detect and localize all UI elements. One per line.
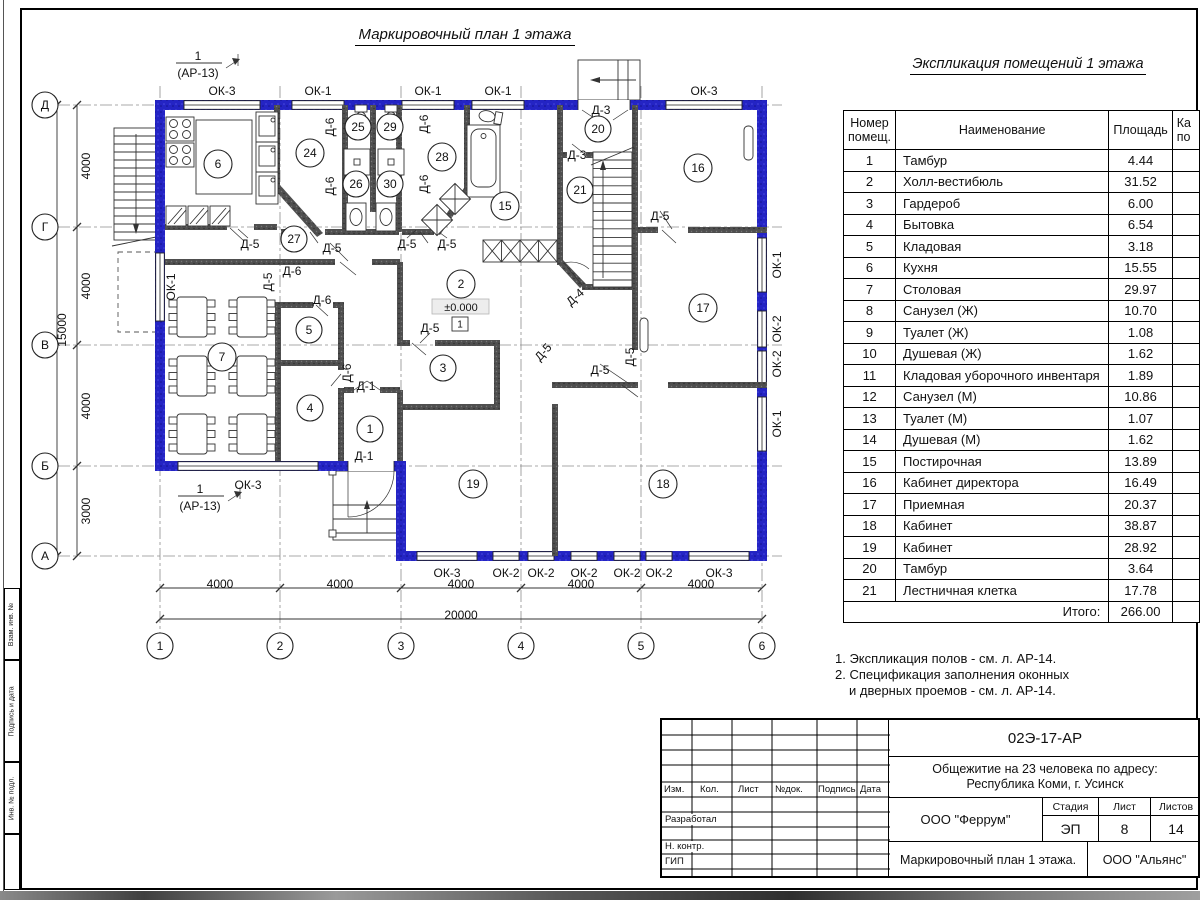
- table-cell: [1172, 257, 1199, 279]
- table-cell: Туалет (М): [896, 408, 1109, 430]
- rect-el: [259, 146, 275, 166]
- use-el: [346, 203, 366, 231]
- table-cell: 3: [844, 193, 896, 215]
- table-cell: 11: [844, 365, 896, 387]
- table-cell: Санузел (М): [896, 386, 1109, 408]
- rect-el: [338, 302, 344, 370]
- plan-label: 20000: [444, 608, 478, 622]
- plan-label: 1: [367, 422, 374, 436]
- plan-label: 27: [287, 232, 301, 246]
- table-row: 7Столовая29.97: [844, 279, 1200, 301]
- bathtub: [467, 125, 500, 197]
- plan-label: Д-1: [357, 379, 376, 393]
- table-row: 12Санузел (М)10.86: [844, 386, 1200, 408]
- table-cell: Холл-вестибюль: [896, 171, 1109, 193]
- rect-el: [275, 360, 344, 366]
- col-header-cut: Ка по: [1172, 111, 1199, 150]
- notes: 1. Экспликация полов - см. л. АР-14. 2. …: [835, 651, 1069, 699]
- plan-label: 4000: [79, 152, 93, 179]
- table-cell: 1.62: [1109, 429, 1172, 451]
- table-row: 13Туалет (М)1.07: [844, 408, 1200, 430]
- plan-label: ОК-2: [528, 566, 555, 580]
- plan-label: 4: [307, 401, 314, 415]
- plan-label: Д-5: [421, 321, 440, 335]
- plan-label: Д-5: [241, 237, 260, 251]
- sheets-total-cell: 14: [1150, 815, 1200, 842]
- entrance-stoop-top: [578, 60, 640, 100]
- table-cell: 8: [844, 300, 896, 322]
- table-cell: 17: [844, 494, 896, 516]
- plan-label: 1: [457, 320, 463, 331]
- plan-label: 21: [573, 183, 587, 197]
- table-cell: [1172, 515, 1199, 537]
- plan-label: 6: [215, 157, 222, 171]
- table-cell: 4: [844, 214, 896, 236]
- table-cell: [1172, 193, 1199, 215]
- plan-label: ОК-1: [770, 251, 784, 278]
- plan-label: Д-5: [398, 237, 417, 251]
- plan-label: 3000: [79, 497, 93, 524]
- rect-el: [632, 288, 638, 350]
- plan-label: 4000: [207, 577, 234, 591]
- table-cell: 13.89: [1109, 451, 1172, 473]
- table-row: 16Кабинет директора16.49: [844, 472, 1200, 494]
- rect-el: [254, 224, 277, 230]
- table-cell: 1.07: [1109, 408, 1172, 430]
- table-cell: Кабинет: [896, 515, 1109, 537]
- plan-label: ±0.000: [444, 302, 478, 314]
- role-ncontrol: Н. контр.: [665, 841, 707, 852]
- plan-label: 30: [383, 177, 397, 191]
- rect-el: [640, 318, 648, 352]
- table-row: 6Кухня15.55: [844, 257, 1200, 279]
- table-cell: Постирочная: [896, 451, 1109, 473]
- plan-title: Маркировочный план 1 этажа: [330, 26, 600, 43]
- drawing-sheet: { "sheet": { "plan_title": "Маркировочны…: [0, 0, 1200, 900]
- canopy-dashed-outline: [118, 252, 156, 332]
- external-stair: [112, 128, 161, 246]
- path-el: [692, 720, 857, 876]
- table-cell: Душевая (М): [896, 429, 1109, 451]
- table-cell: Тамбур: [896, 558, 1109, 580]
- rect-el: [688, 227, 767, 233]
- plan-label: ОК-3: [691, 84, 718, 98]
- col-header-number: Номер помещ.: [844, 111, 896, 150]
- plan-label: 28: [435, 150, 449, 164]
- plan-label: ОК-1: [415, 84, 442, 98]
- table-cell: 7: [844, 279, 896, 301]
- table-cell: 16.49: [1109, 472, 1172, 494]
- plan-label: 25: [351, 120, 365, 134]
- table-cell: [1172, 558, 1199, 580]
- plan-label: Д-6: [323, 117, 337, 136]
- table-row: 5Кладовая3.18: [844, 236, 1200, 258]
- plan-label: 26: [349, 177, 363, 191]
- expl-table-body: 1Тамбур4.442Холл-вестибюль31.523Гардероб…: [844, 150, 1200, 602]
- table-cell: 13: [844, 408, 896, 430]
- role-gip: ГИП: [665, 856, 687, 867]
- plan-label: (АР-13): [177, 66, 218, 80]
- rect-el: [325, 229, 343, 235]
- table-cell: [1172, 429, 1199, 451]
- table-row: 4Бытовка6.54: [844, 214, 1200, 236]
- table-row: 20Тамбур3.64: [844, 558, 1200, 580]
- plan-label: 1: [157, 639, 164, 653]
- table-cell: Гардероб: [896, 193, 1109, 215]
- rect-el: [338, 388, 344, 461]
- rect-el: [557, 105, 563, 265]
- stage-value-cell: ЭП: [1042, 815, 1099, 842]
- plan-label: Д-5: [438, 237, 457, 251]
- rect-el: [471, 129, 496, 187]
- plan-label: Д-3: [592, 103, 611, 117]
- rev-header-list: Лист: [738, 784, 759, 795]
- rev-header-izm: Изм.: [664, 784, 684, 795]
- total-label: Итого:: [844, 601, 1109, 622]
- table-cell: [1172, 150, 1199, 172]
- plan-label: 4000: [79, 392, 93, 419]
- rect-el: [593, 152, 632, 287]
- sheet-number-cell: 8: [1098, 815, 1151, 842]
- project-line1: Общежитие на 23 человека по адресу:: [932, 762, 1157, 777]
- table-cell: 17.78: [1109, 580, 1172, 602]
- plan-label: 18: [656, 477, 670, 491]
- axis-grid: [58, 86, 782, 633]
- plan-label: 17: [696, 301, 710, 315]
- plan-label: 3: [440, 361, 447, 375]
- rect-el: [396, 461, 406, 556]
- table-cell: 1.08: [1109, 322, 1172, 344]
- table-cell: [1172, 386, 1199, 408]
- use-el: [169, 414, 215, 454]
- table-cell: [1172, 214, 1199, 236]
- table-cell: Тамбур: [896, 150, 1109, 172]
- plan-label: 4000: [448, 577, 475, 591]
- table-row: 9Туалет (Ж)1.08: [844, 322, 1200, 344]
- table-row: 10Душевая (Ж)1.62: [844, 343, 1200, 365]
- table-cell: Санузел (Ж): [896, 300, 1109, 322]
- rect-el: [435, 340, 500, 346]
- total-row: Итого: 266.00: [844, 601, 1200, 622]
- plan-label: 2: [277, 639, 284, 653]
- rect-el: [344, 387, 354, 393]
- plan-label: 4000: [79, 272, 93, 299]
- plan-label: А: [41, 549, 49, 563]
- plan-label: ОК-2: [493, 566, 520, 580]
- rect-el: [632, 227, 658, 233]
- rect-el: [329, 530, 336, 537]
- table-cell: 16: [844, 472, 896, 494]
- sheet-title-cell: Маркировочный план 1 этажа.: [888, 841, 1088, 878]
- rev-header-sign: Подпись: [818, 784, 856, 795]
- plan-label: Д-5: [323, 241, 342, 255]
- scan-artifact-strip: [0, 891, 1200, 900]
- plan-label: 4000: [327, 577, 354, 591]
- plan-label: Д-6: [283, 264, 302, 278]
- table-cell: Кабинет директора: [896, 472, 1109, 494]
- rect-el: [165, 259, 335, 265]
- plan-label: Д-5: [261, 272, 275, 291]
- use-el: [169, 297, 215, 337]
- use-el: [229, 297, 275, 337]
- role-developer: Разработал: [665, 814, 720, 825]
- table-cell: 1.62: [1109, 343, 1172, 365]
- table-row: 11Кладовая уборочного инвентаря1.89: [844, 365, 1200, 387]
- plan-label: ОК-3: [209, 84, 236, 98]
- table-cell: 31.52: [1109, 171, 1172, 193]
- table-cell: Бытовка: [896, 214, 1109, 236]
- table-cell: 1: [844, 150, 896, 172]
- table-cell: 10: [844, 343, 896, 365]
- table-cell: 5: [844, 236, 896, 258]
- table-cell: 1.89: [1109, 365, 1172, 387]
- plan-label: Д-5: [591, 363, 610, 377]
- rect-el: [275, 302, 281, 461]
- plan-label: Д-6: [323, 176, 337, 195]
- plan-label: 1: [195, 49, 202, 63]
- sheet-label-cell: Лист: [1098, 797, 1151, 816]
- plan-label: 15000: [55, 313, 69, 347]
- table-cell: 2: [844, 171, 896, 193]
- plan-label: 24: [303, 146, 317, 160]
- sheets-label-cell: Листов: [1150, 797, 1200, 816]
- plan-label: ОК-1: [164, 273, 178, 300]
- span-el: Экспликация помещений 1 этажа: [910, 56, 1145, 75]
- note-line: 1. Экспликация полов - см. л. АР-14.: [835, 651, 1069, 667]
- table-header-row: Номер помещ. Наименование Площадь Ка по: [844, 111, 1200, 150]
- note-line: и дверных проемов - см. л. АР-14.: [835, 683, 1069, 699]
- plan-label: 3: [398, 639, 405, 653]
- project-name-cell: Общежитие на 23 человека по адресу: Респ…: [888, 756, 1200, 798]
- table-cell: 6.54: [1109, 214, 1172, 236]
- use-el: [478, 109, 503, 125]
- rev-header-date: Дата: [860, 784, 881, 795]
- table-cell: 6.00: [1109, 193, 1172, 215]
- plan-label: 4000: [688, 577, 715, 591]
- plan-label: В: [41, 338, 49, 352]
- plan-label: 1: [197, 482, 204, 496]
- col-header-cut-line1: Ка: [1177, 116, 1195, 130]
- explication-table-head: Номер помещ. Наименование Площадь Ка по: [844, 111, 1200, 150]
- plan-label: Д-3: [568, 148, 587, 162]
- table-cell: Приемная: [896, 494, 1109, 516]
- table-cell: [1172, 300, 1199, 322]
- customer-org-cell: ООО "Альянс": [1087, 841, 1200, 878]
- plan-label: (АР-13): [179, 499, 220, 513]
- dining-tables: [169, 297, 275, 454]
- plan-label: 6: [759, 639, 766, 653]
- table-row: 19Кабинет28.92: [844, 537, 1200, 559]
- total-value: 266.00: [1109, 601, 1172, 622]
- col-header-name: Наименование: [896, 111, 1109, 150]
- note-line: 2. Спецификация заполнения оконных: [835, 667, 1069, 683]
- plan-label: ОК-2: [770, 315, 784, 342]
- col-header-cut-line2: по: [1177, 130, 1195, 144]
- rect-el: [397, 262, 403, 343]
- table-cell: 10.70: [1109, 300, 1172, 322]
- table-cell: [1172, 580, 1199, 602]
- table-cell: 6: [844, 257, 896, 279]
- table-row: 1Тамбур4.44: [844, 150, 1200, 172]
- rev-header-doc: №док.: [775, 784, 803, 795]
- table-cell: [1172, 537, 1199, 559]
- table-cell: Кабинет: [896, 537, 1109, 559]
- table-cell: [1172, 343, 1199, 365]
- table-cell: 9: [844, 322, 896, 344]
- table-row: 8Санузел (Ж)10.70: [844, 300, 1200, 322]
- table-cell: [1172, 365, 1199, 387]
- table-cell: 15.55: [1109, 257, 1172, 279]
- plan-label: ОК-1: [305, 84, 332, 98]
- rect-el: [744, 126, 753, 160]
- plan-label: ОК-2: [614, 566, 641, 580]
- table-row: 15Постирочная13.89: [844, 451, 1200, 473]
- rect-el: [552, 404, 558, 556]
- rev-header-kol: Кол.: [700, 784, 719, 795]
- total-cut-cell: [1172, 601, 1199, 622]
- polygon-el: [232, 58, 240, 65]
- use-el: [376, 203, 396, 231]
- table-cell: Кладовая: [896, 236, 1109, 258]
- col-header-area: Площадь: [1109, 111, 1172, 150]
- table-cell: 15: [844, 451, 896, 473]
- explication-table-foot: Итого: 266.00: [844, 601, 1200, 622]
- table-cell: Туалет (Ж): [896, 322, 1109, 344]
- revision-grid: [662, 720, 890, 876]
- table-cell: [1172, 494, 1199, 516]
- table-cell: Кладовая уборочного инвентаря: [896, 365, 1109, 387]
- explication-title: Экспликация помещений 1 этажа: [888, 56, 1168, 72]
- rect-el: [275, 302, 313, 308]
- table-cell: [1172, 451, 1199, 473]
- rect-el: [494, 340, 500, 410]
- plan-label: 5: [306, 323, 313, 337]
- table-cell: 3.18: [1109, 236, 1172, 258]
- plan-label: 19: [466, 477, 480, 491]
- span-el: Маркировочный план 1 этажа: [355, 26, 576, 46]
- table-row: 21Лестничная клетка17.78: [844, 580, 1200, 602]
- table-cell: 18: [844, 515, 896, 537]
- plan-label: Д-5: [651, 209, 670, 223]
- rect-el: [259, 176, 275, 196]
- rect-el: [402, 229, 434, 235]
- plan-label: ОК-3: [235, 478, 262, 492]
- table-cell: [1172, 279, 1199, 301]
- plan-label: ОК-1: [485, 84, 512, 98]
- table-cell: [1172, 322, 1199, 344]
- plan-label: ОК-1: [770, 410, 784, 437]
- table-cell: 4.44: [1109, 150, 1172, 172]
- plan-label: Д-5: [532, 340, 555, 364]
- document-code-cell: 02Э-17-АР: [888, 719, 1200, 757]
- table-cell: 28.92: [1109, 537, 1172, 559]
- title-block: Изм. Кол. Лист №док. Подпись Дата Разраб…: [660, 718, 1200, 878]
- plan-label: Д: [41, 98, 49, 112]
- plan-label: Д-6: [313, 293, 332, 307]
- table-cell: Душевая (Ж): [896, 343, 1109, 365]
- plan-label: 5: [638, 639, 645, 653]
- internal-stair: [591, 147, 634, 287]
- table-cell: Лестничная клетка: [896, 580, 1109, 602]
- plan-label: 20: [591, 122, 605, 136]
- use-el: [169, 356, 215, 396]
- use-el: [229, 356, 275, 396]
- table-cell: 29.97: [1109, 279, 1172, 301]
- plan-label: ОК-2: [646, 566, 673, 580]
- designer-org-cell: ООО "Феррум": [888, 797, 1043, 842]
- table-cell: Кухня: [896, 257, 1109, 279]
- table-cell: 38.87: [1109, 515, 1172, 537]
- rect-el: [668, 382, 767, 388]
- project-line2: Республика Коми, г. Усинск: [967, 777, 1124, 792]
- plan-label: 29: [383, 120, 397, 134]
- table-cell: 20.37: [1109, 494, 1172, 516]
- plan-label: 2: [458, 277, 465, 291]
- plan-label: 16: [691, 161, 705, 175]
- table-cell: 20: [844, 558, 896, 580]
- stage-label-cell: Стадия: [1042, 797, 1099, 816]
- rect-el: [372, 259, 400, 265]
- table-cell: 10.86: [1109, 386, 1172, 408]
- table-cell: 19: [844, 537, 896, 559]
- table-cell: [1172, 472, 1199, 494]
- rect-el: [557, 152, 567, 158]
- table-cell: Столовая: [896, 279, 1109, 301]
- rect-el: [632, 105, 638, 288]
- plan-label: Д-6: [417, 174, 431, 193]
- table-row: 2Холл-вестибюль31.52: [844, 171, 1200, 193]
- plan-label: Д-6: [417, 114, 431, 133]
- rect-el: [397, 340, 410, 346]
- rect-el: [259, 116, 275, 136]
- table-cell: [1172, 171, 1199, 193]
- plan-label: Д-5: [623, 347, 637, 366]
- plan-label: Д-6: [340, 363, 354, 382]
- table-row: 3Гардероб6.00: [844, 193, 1200, 215]
- rect-el: [397, 404, 500, 410]
- plan-label: Г: [42, 220, 49, 234]
- table-cell: 3.64: [1109, 558, 1172, 580]
- table-cell: [1172, 408, 1199, 430]
- table-row: 14Душевая (М)1.62: [844, 429, 1200, 451]
- plan-label: Д-1: [355, 449, 374, 463]
- plan-label: 15: [498, 199, 512, 213]
- plan-label: 4: [518, 639, 525, 653]
- plan-label: ОК-2: [770, 350, 784, 377]
- use-el: [229, 414, 275, 454]
- table-cell: [1172, 236, 1199, 258]
- table-cell: 14: [844, 429, 896, 451]
- table-row: 17Приемная20.37: [844, 494, 1200, 516]
- rect-el: [370, 105, 376, 212]
- explication-table: Номер помещ. Наименование Площадь Ка по …: [843, 110, 1200, 623]
- table-row: 18Кабинет38.87: [844, 515, 1200, 537]
- entrance-porch-bottom: [329, 468, 401, 540]
- rect-el: [397, 390, 403, 461]
- table-cell: 21: [844, 580, 896, 602]
- table-cell: 12: [844, 386, 896, 408]
- plan-label: 7: [219, 350, 226, 364]
- plan-label: Б: [41, 459, 49, 473]
- plan-label: 4000: [568, 577, 595, 591]
